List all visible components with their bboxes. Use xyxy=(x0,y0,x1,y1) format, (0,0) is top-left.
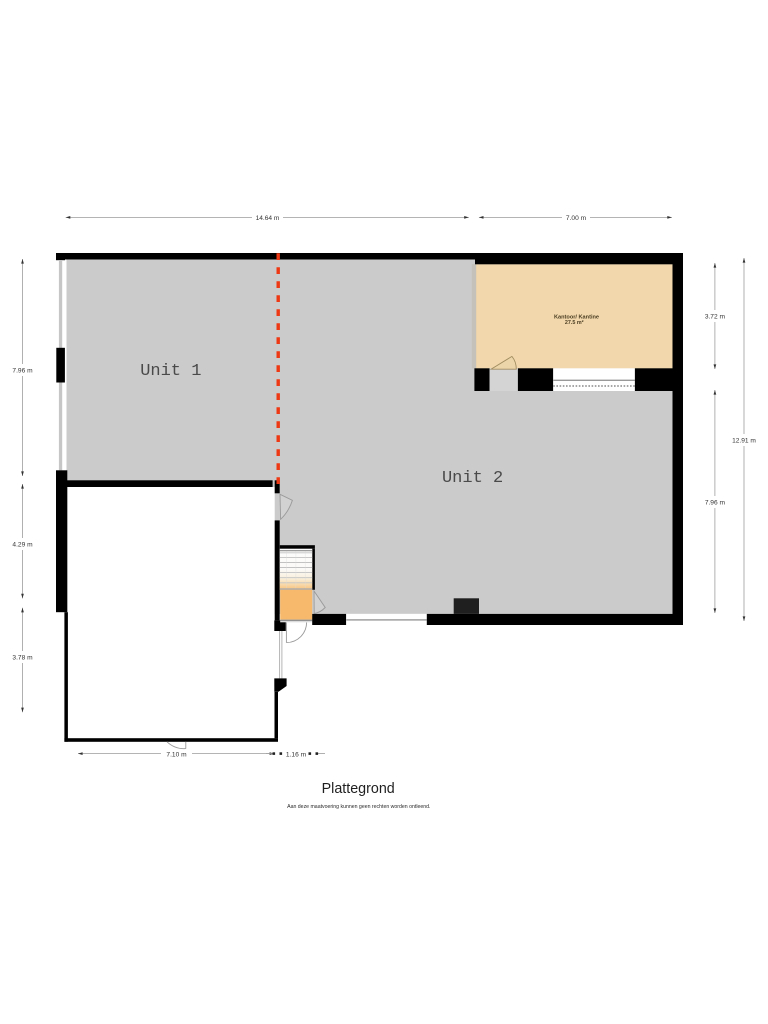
svg-text:Aan deze maatvoering kunnen ge: Aan deze maatvoering kunnen geen rechten… xyxy=(287,804,430,810)
svg-text:Unit 1: Unit 1 xyxy=(140,362,201,381)
svg-text:1.16 m: 1.16 m xyxy=(286,751,307,758)
svg-text:7.96 m: 7.96 m xyxy=(12,367,33,374)
svg-text:12.91 m: 12.91 m xyxy=(732,437,756,444)
svg-text:4.29 m: 4.29 m xyxy=(12,541,33,548)
svg-text:7.96 m: 7.96 m xyxy=(705,499,726,506)
svg-text:Unit 2: Unit 2 xyxy=(442,469,503,488)
svg-text:14.64 m: 14.64 m xyxy=(256,215,280,222)
svg-text:3.72 m: 3.72 m xyxy=(705,313,726,320)
svg-text:Plattegrond: Plattegrond xyxy=(322,781,395,797)
svg-text:3.78 m: 3.78 m xyxy=(12,655,33,662)
svg-text:27.5 m²: 27.5 m² xyxy=(565,320,584,326)
svg-text:7.00 m: 7.00 m xyxy=(566,215,587,222)
svg-text:7.10 m: 7.10 m xyxy=(166,751,187,758)
